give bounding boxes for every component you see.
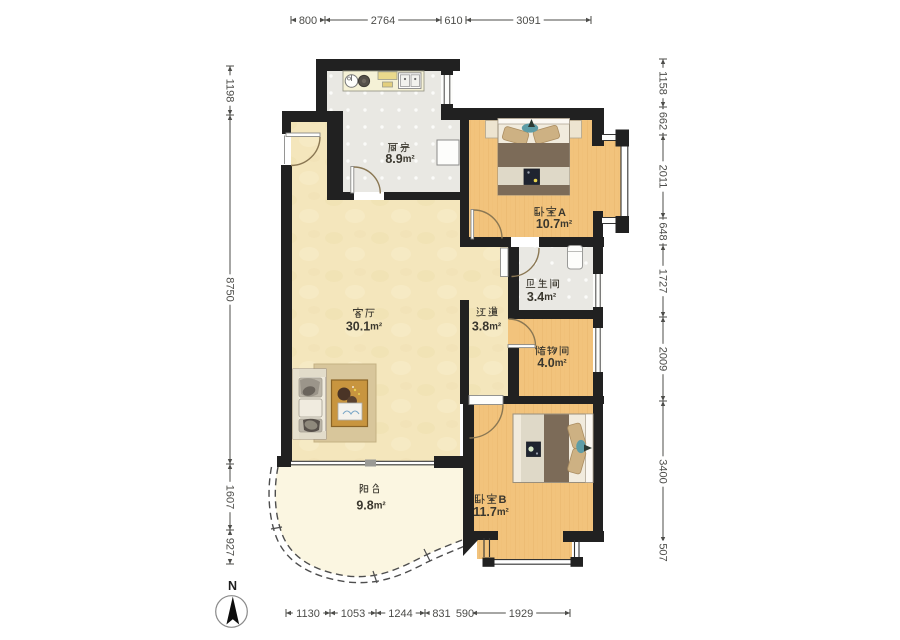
svg-text:11.7m²: 11.7m² bbox=[473, 505, 509, 519]
svg-text:800: 800 bbox=[299, 15, 317, 27]
svg-text:831: 831 bbox=[432, 608, 450, 620]
svg-text:2764: 2764 bbox=[371, 15, 395, 27]
svg-text:2011: 2011 bbox=[656, 165, 668, 189]
svg-text:648: 648 bbox=[656, 222, 668, 240]
svg-text:1053: 1053 bbox=[341, 608, 365, 620]
svg-text:10.7m²: 10.7m² bbox=[536, 217, 573, 231]
svg-text:4.0m²: 4.0m² bbox=[537, 356, 567, 370]
svg-text:610: 610 bbox=[444, 15, 462, 27]
svg-text:590: 590 bbox=[456, 608, 474, 620]
svg-text:1929: 1929 bbox=[509, 608, 533, 620]
svg-text:1158: 1158 bbox=[656, 71, 668, 95]
svg-text:3091: 3091 bbox=[516, 15, 540, 27]
svg-text:1727: 1727 bbox=[656, 269, 668, 293]
svg-text:8750: 8750 bbox=[223, 277, 235, 301]
svg-text:3.4m²: 3.4m² bbox=[527, 290, 557, 304]
svg-text:2009: 2009 bbox=[656, 347, 668, 371]
svg-text:927: 927 bbox=[223, 538, 235, 556]
svg-text:1130: 1130 bbox=[296, 608, 320, 620]
svg-text:662: 662 bbox=[656, 112, 668, 130]
svg-text:1198: 1198 bbox=[223, 79, 235, 103]
svg-text:N: N bbox=[228, 579, 237, 593]
svg-text:B: B bbox=[499, 494, 507, 506]
svg-text:1244: 1244 bbox=[388, 608, 412, 620]
svg-text:3400: 3400 bbox=[656, 459, 668, 483]
svg-text:507: 507 bbox=[656, 543, 668, 561]
svg-text:8.9m²: 8.9m² bbox=[385, 152, 415, 166]
svg-text:9.8m²: 9.8m² bbox=[356, 499, 386, 513]
svg-text:3.8m²: 3.8m² bbox=[472, 320, 502, 334]
svg-text:1607: 1607 bbox=[223, 485, 235, 509]
svg-text:30.1m²: 30.1m² bbox=[346, 320, 383, 334]
